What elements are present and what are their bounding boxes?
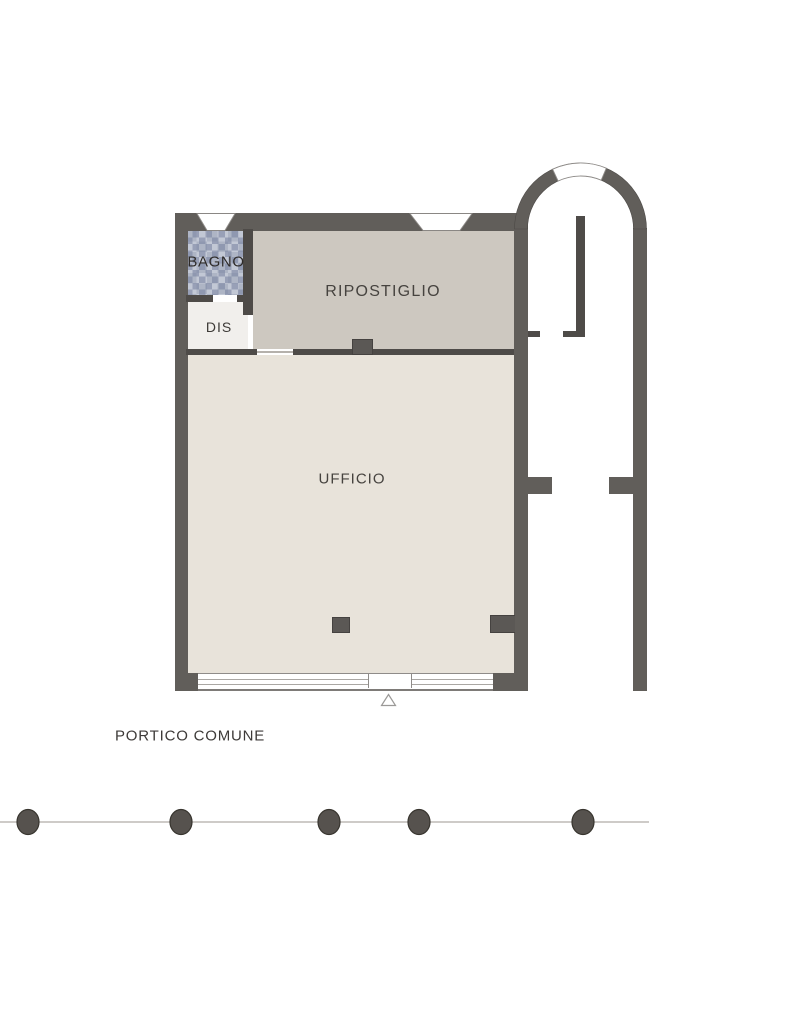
dis-label: DIS (206, 319, 232, 335)
entrance-triangle-icon (382, 695, 396, 706)
column-dot-1 (17, 810, 39, 835)
column-dot-5 (572, 810, 594, 835)
arch-window (553, 163, 607, 181)
column-dot-3 (318, 810, 340, 835)
floor-plan-canvas: BAGNO DIS RIPOSTIGLIO UFFICIO PORTICO CO… (0, 0, 786, 1024)
window-ripostiglio (410, 214, 472, 231)
vector-layer (0, 0, 786, 1024)
ripostiglio-label: RIPOSTIGLIO (325, 283, 440, 301)
bagno-label: BAGNO (187, 254, 244, 271)
column-dot-2 (170, 810, 192, 835)
column-dot-4 (408, 810, 430, 835)
window-bagno (197, 214, 235, 231)
ufficio-label: UFFICIO (319, 471, 386, 488)
portico-comune-label: PORTICO COMUNE (115, 728, 265, 745)
